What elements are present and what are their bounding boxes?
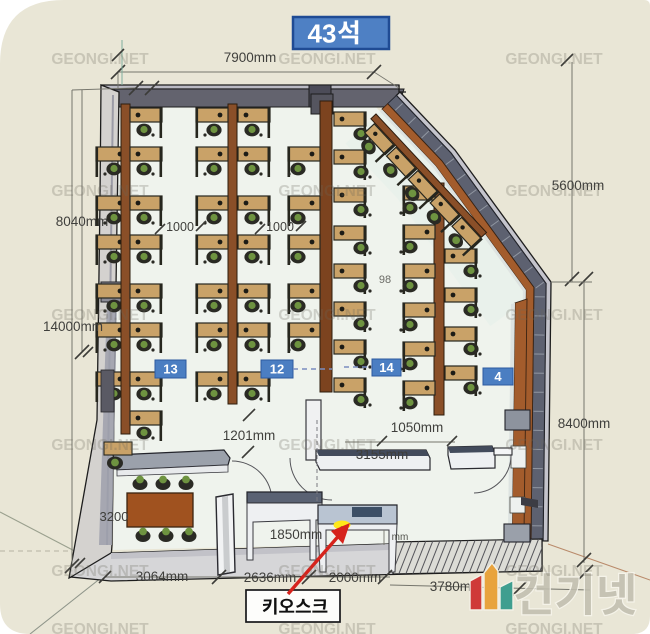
svg-text:GEONGI.NET: GEONGI.NET xyxy=(51,437,149,454)
svg-text:GEONGI.NET: GEONGI.NET xyxy=(51,621,149,634)
svg-text:GEONGI.NET: GEONGI.NET xyxy=(278,51,376,68)
svg-text:43: 43 xyxy=(308,19,337,49)
svg-text:GEONGI.NET: GEONGI.NET xyxy=(505,307,603,324)
svg-text:98: 98 xyxy=(379,274,391,286)
svg-text:8400mm: 8400mm xyxy=(558,416,611,431)
svg-text:12: 12 xyxy=(270,362,284,377)
svg-text:GEONGI.NET: GEONGI.NET xyxy=(278,307,376,324)
svg-text:8040mm: 8040mm xyxy=(56,214,109,229)
svg-text:GEONGI.NET: GEONGI.NET xyxy=(278,621,376,634)
svg-text:GEONGI.NET: GEONGI.NET xyxy=(505,437,603,454)
svg-text:1000: 1000 xyxy=(166,220,194,234)
svg-text:GEONGI.NET: GEONGI.NET xyxy=(51,183,149,200)
svg-text:1050mm: 1050mm xyxy=(391,420,444,435)
svg-text:GEONGI.NET: GEONGI.NET xyxy=(51,563,149,580)
svg-text:3200: 3200 xyxy=(100,509,129,524)
svg-text:GEONGI.NET: GEONGI.NET xyxy=(278,183,376,200)
svg-text:1000: 1000 xyxy=(266,220,294,234)
svg-text:1850mm: 1850mm xyxy=(270,527,323,542)
svg-text:GEONGI.NET: GEONGI.NET xyxy=(505,183,603,200)
svg-text:13: 13 xyxy=(163,362,177,377)
svg-text:mm: mm xyxy=(392,532,409,543)
svg-text:1201mm: 1201mm xyxy=(223,428,276,443)
svg-text:GEONGI.NET: GEONGI.NET xyxy=(278,563,376,580)
svg-text:14: 14 xyxy=(379,360,394,375)
svg-text:GEONGI.NET: GEONGI.NET xyxy=(51,307,149,324)
svg-text:GEONGI.NET: GEONGI.NET xyxy=(505,621,603,634)
svg-text:4: 4 xyxy=(494,369,502,384)
svg-text:GEONGI.NET: GEONGI.NET xyxy=(278,437,376,454)
svg-text:GEONGI.NET: GEONGI.NET xyxy=(51,51,149,68)
svg-text:7900mm: 7900mm xyxy=(224,50,277,65)
svg-text:GEONGI.NET: GEONGI.NET xyxy=(505,51,603,68)
svg-text:GEONGI.NET: GEONGI.NET xyxy=(505,563,603,580)
